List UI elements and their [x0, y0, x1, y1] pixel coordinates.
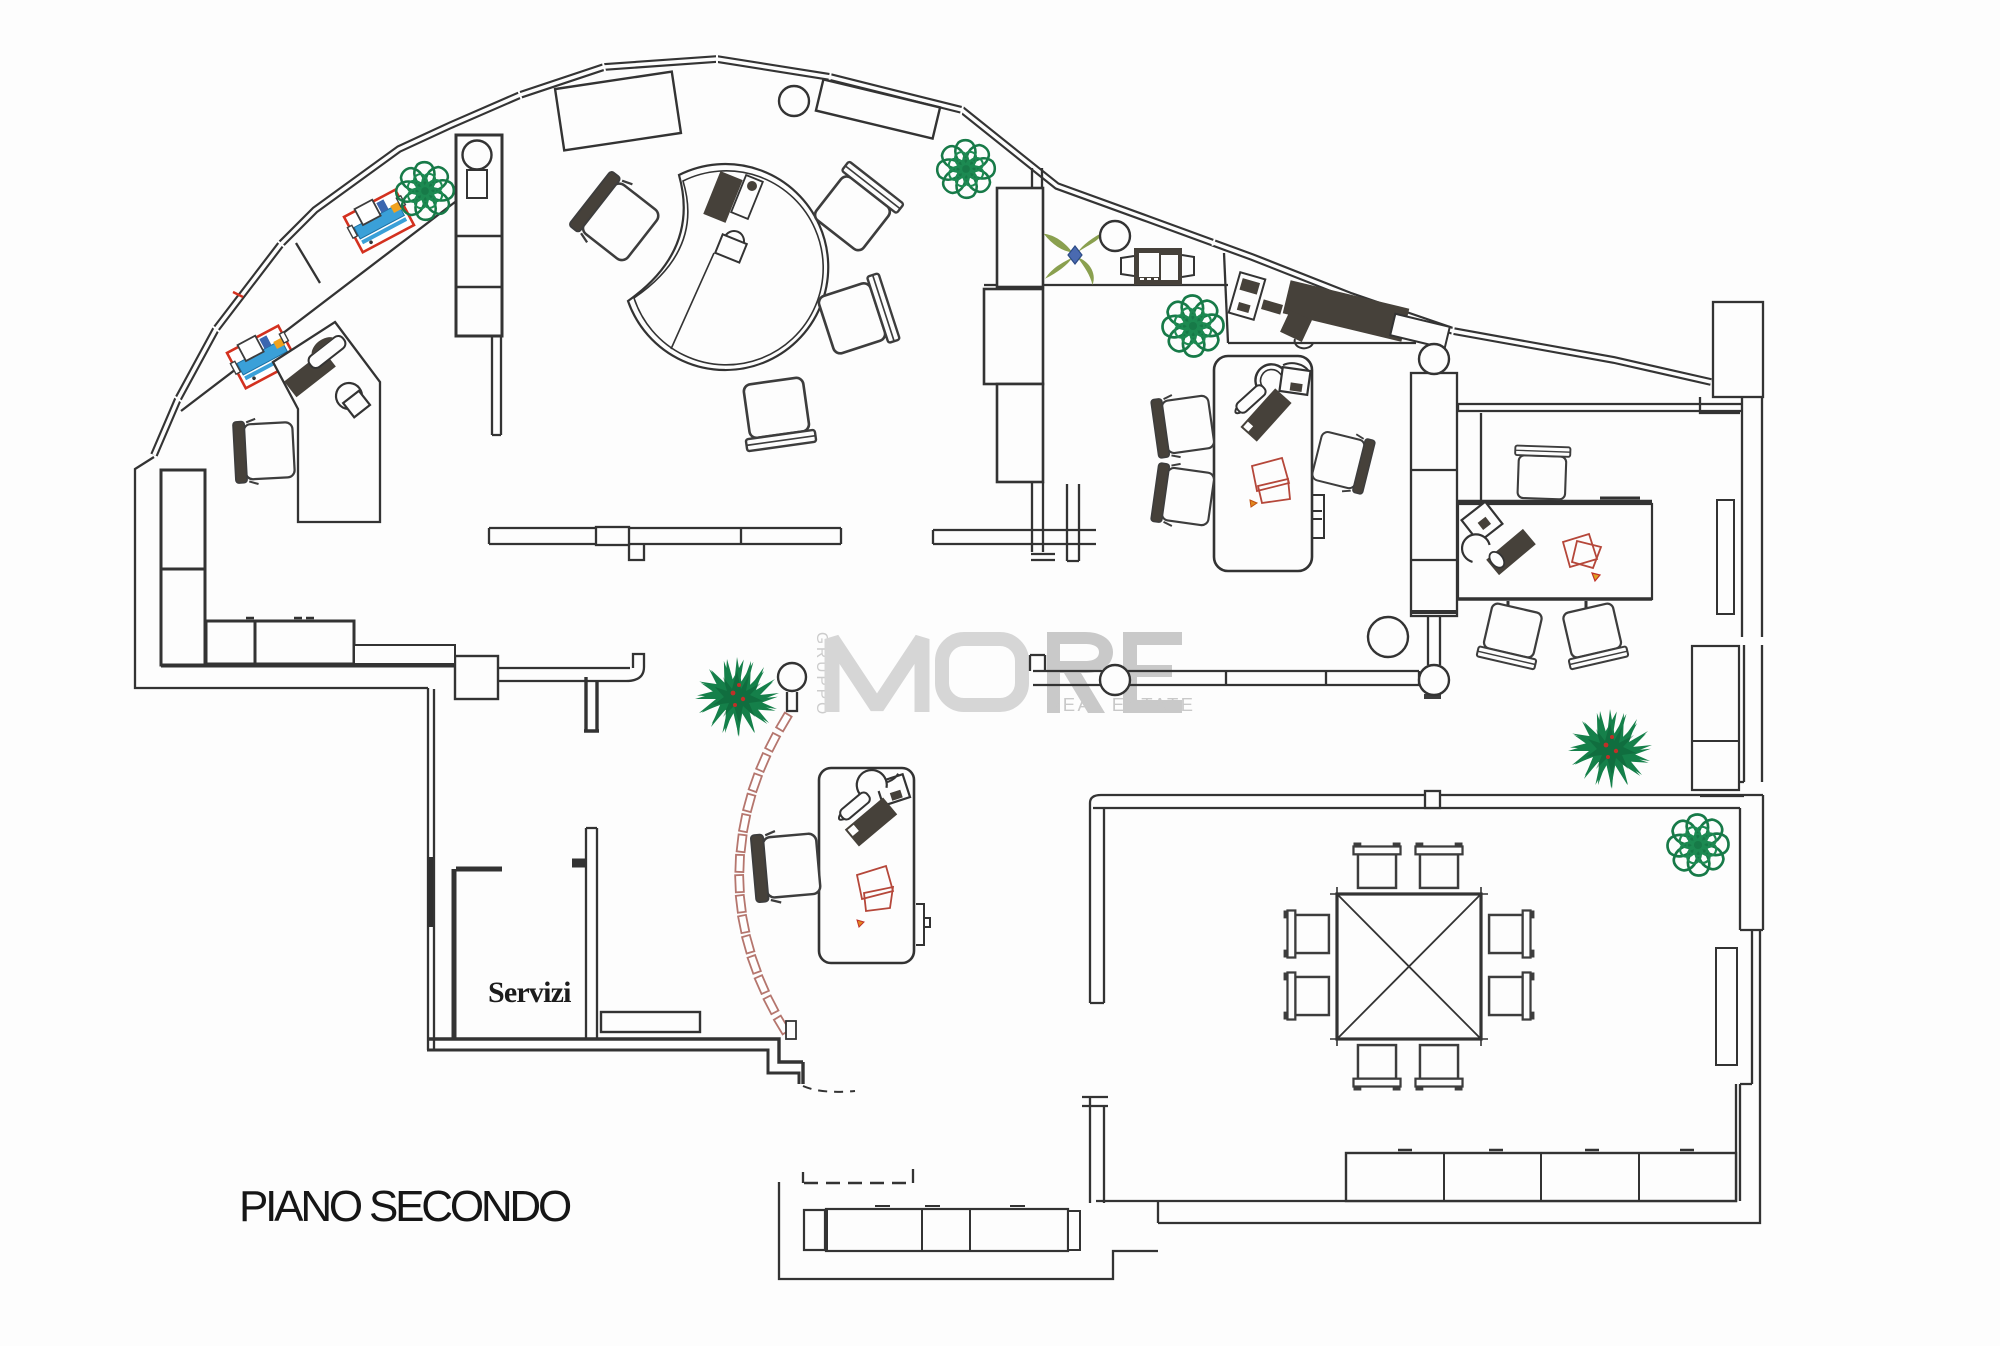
svg-text:Servizi: Servizi [488, 976, 571, 1009]
svg-text:REAL ESTATE: REAL ESTATE [1047, 694, 1195, 715]
svg-text:PIANO SECONDO: PIANO SECONDO [239, 1182, 571, 1231]
